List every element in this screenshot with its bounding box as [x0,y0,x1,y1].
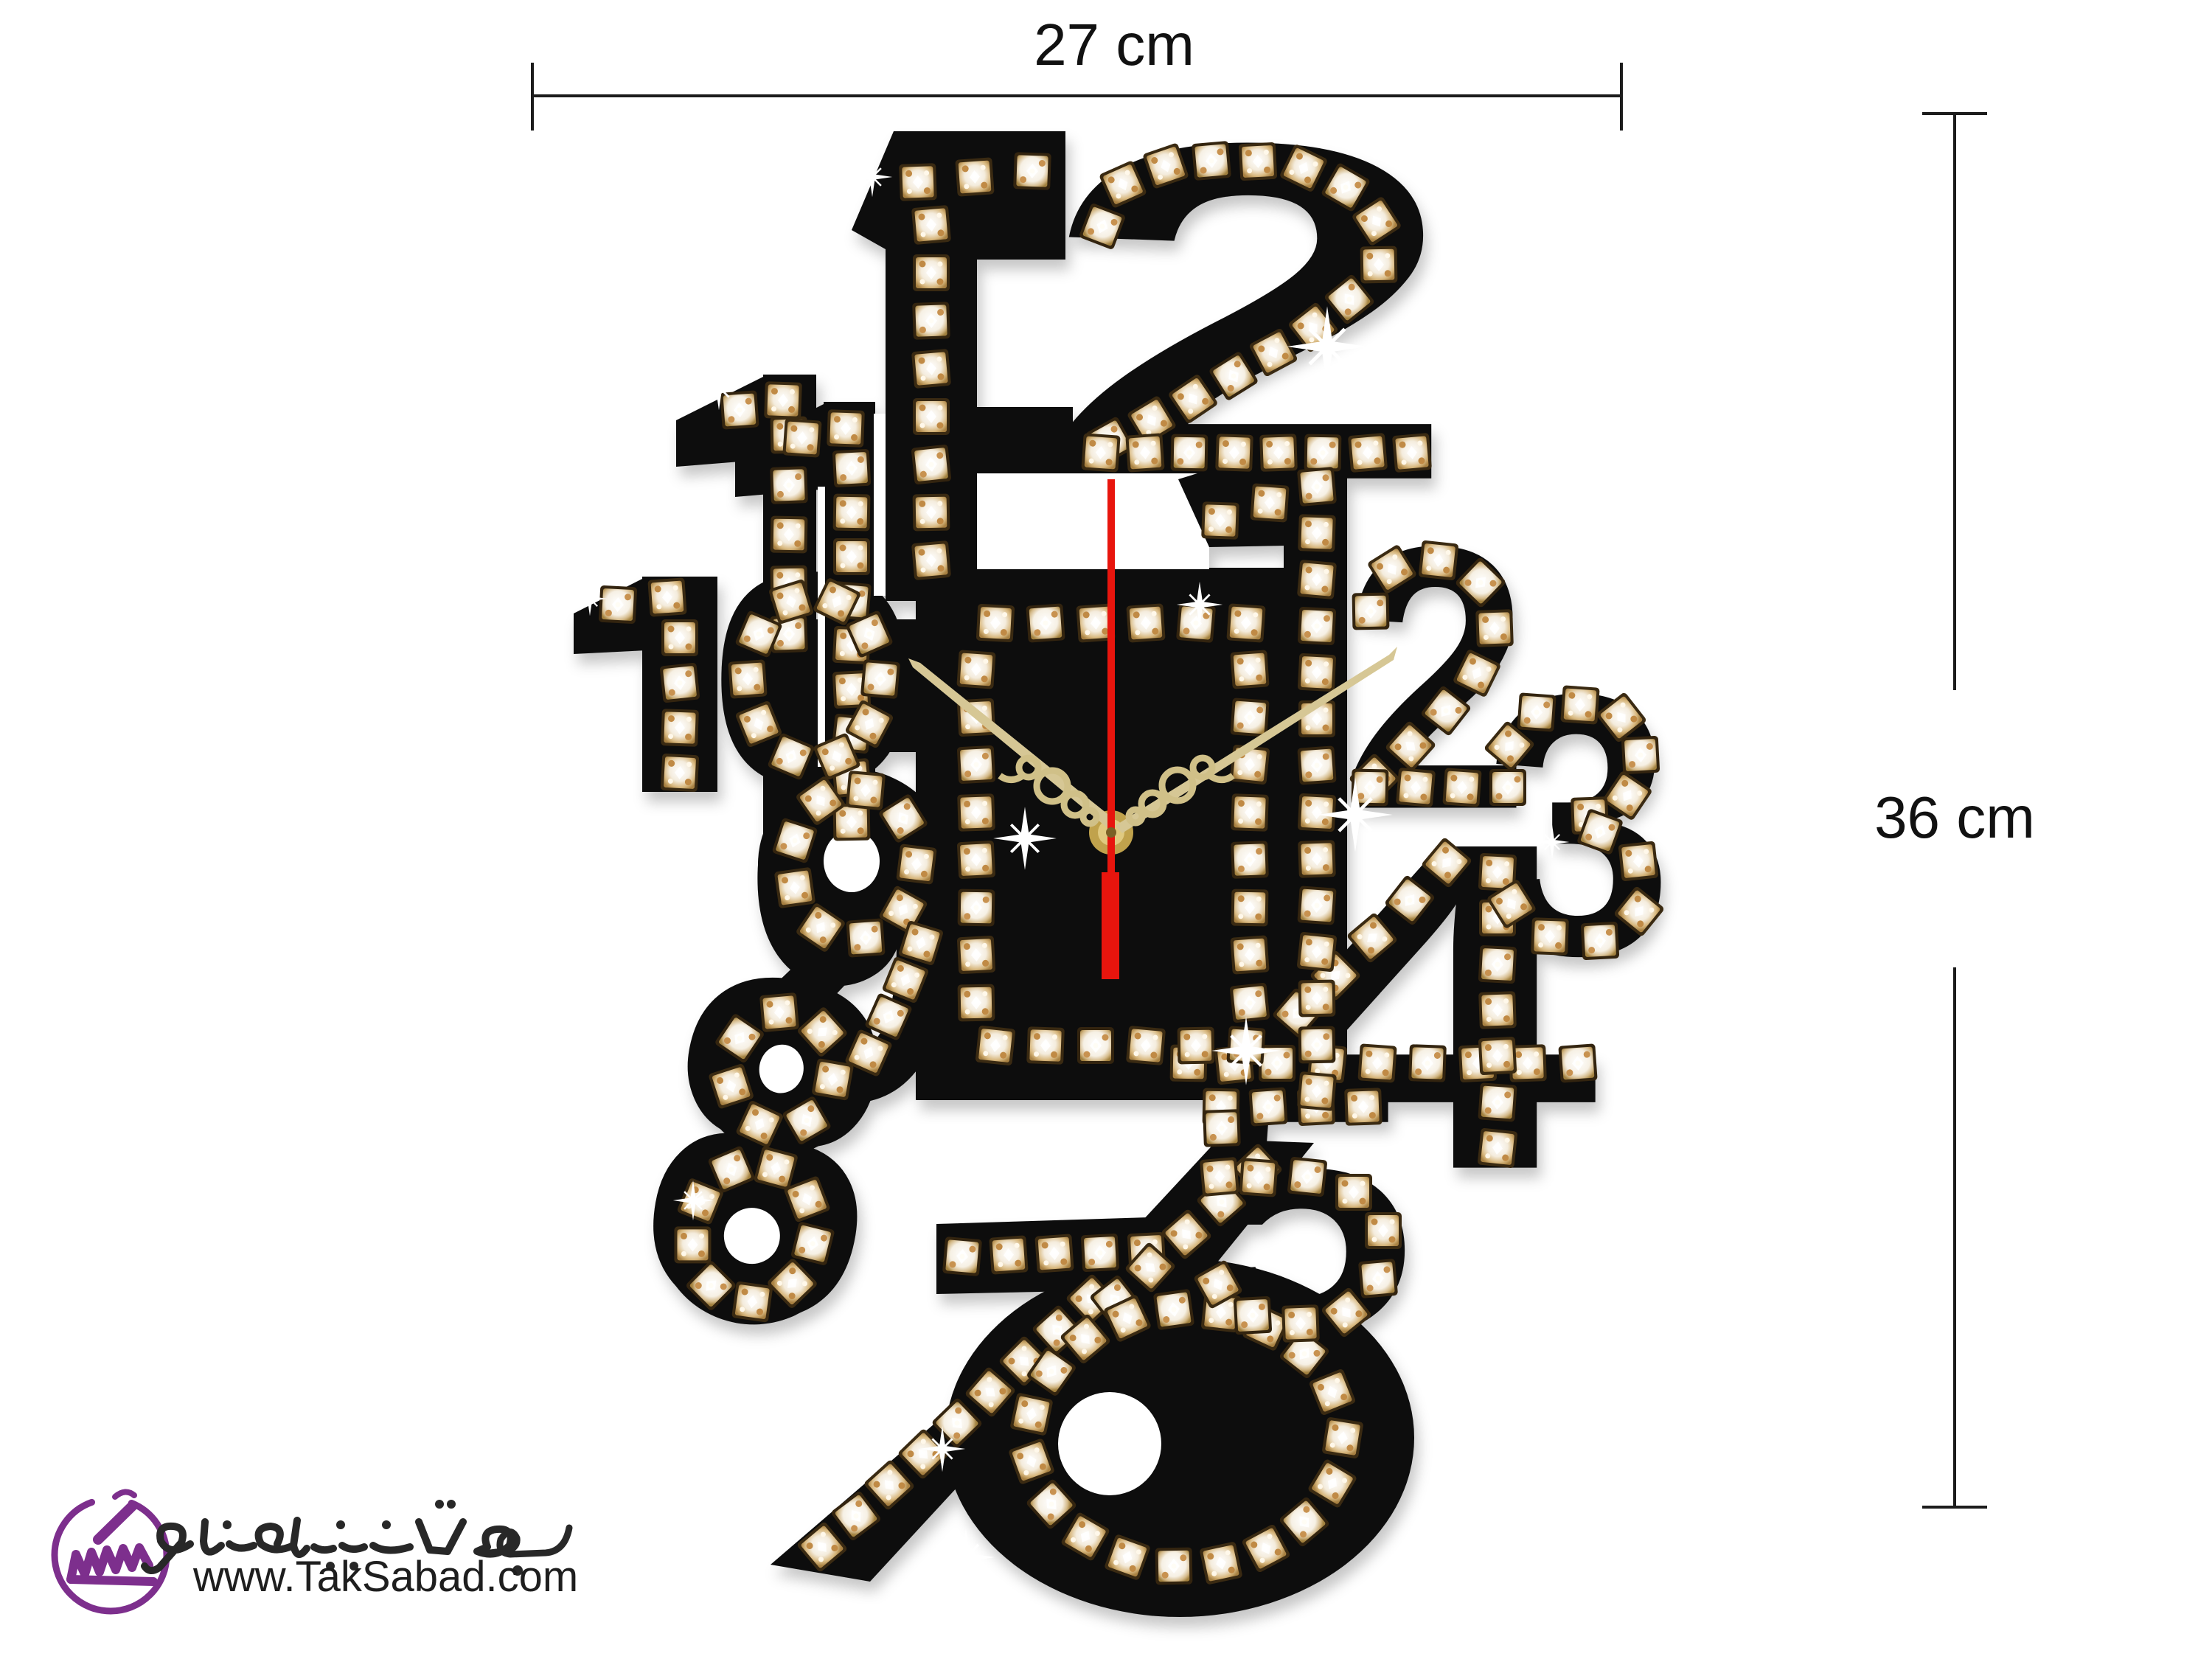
svg-text:www.TakSabad.com: www.TakSabad.com [192,1553,578,1601]
svg-text:36 cm: 36 cm [1874,785,2035,850]
svg-text:2: 2 [1342,469,1529,888]
